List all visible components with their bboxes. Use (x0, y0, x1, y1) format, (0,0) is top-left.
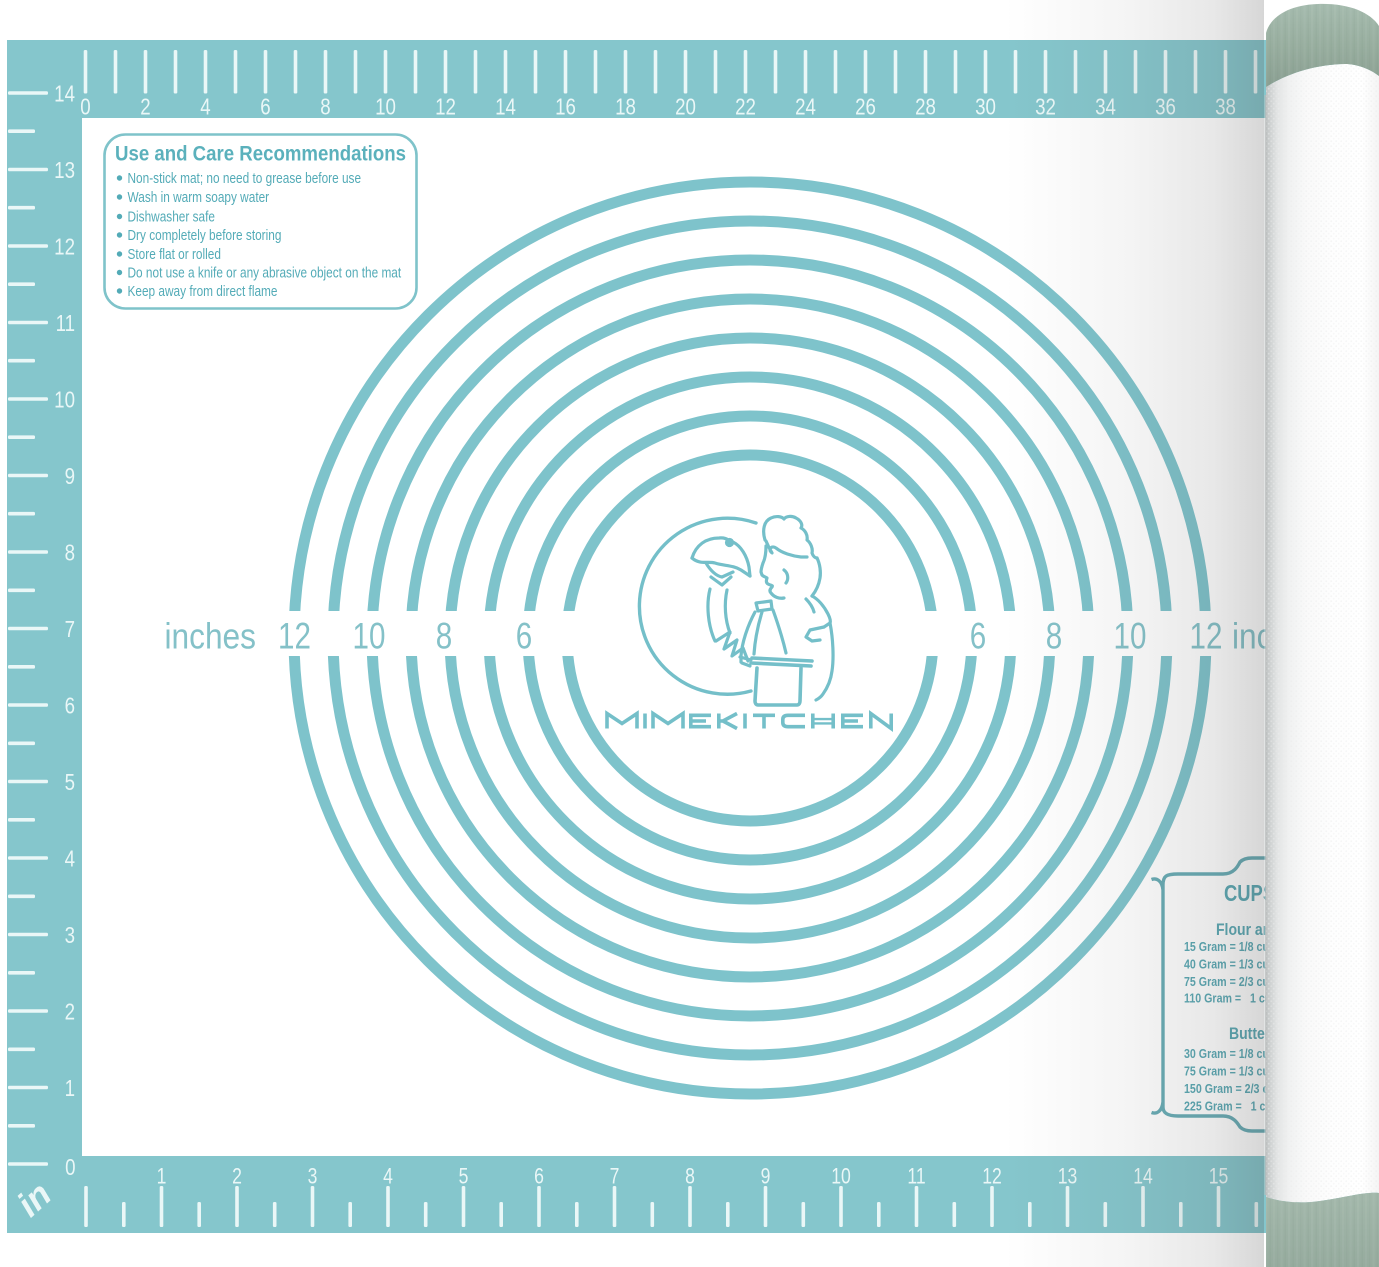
svg-text:10: 10 (375, 94, 396, 119)
svg-text:1: 1 (65, 1076, 75, 1101)
svg-text:3: 3 (65, 923, 75, 948)
svg-text:7: 7 (610, 1165, 620, 1189)
svg-text:22: 22 (735, 94, 756, 119)
svg-text:8: 8 (320, 94, 330, 119)
svg-text:0: 0 (65, 1155, 75, 1180)
svg-text:6: 6 (65, 693, 75, 718)
svg-text:8: 8 (65, 540, 75, 565)
svg-text:4: 4 (383, 1165, 393, 1189)
svg-text:6: 6 (260, 94, 270, 119)
svg-text:10: 10 (353, 616, 386, 657)
svg-text:26: 26 (855, 94, 876, 119)
svg-text:Dishwasher safe: Dishwasher safe (128, 208, 215, 225)
svg-text:1: 1 (157, 1165, 167, 1189)
svg-text:Use and Care Recommendations: Use and Care Recommendations (115, 142, 406, 166)
svg-text:12: 12 (435, 94, 456, 119)
svg-text:Dry completely before storing: Dry completely before storing (128, 227, 282, 244)
svg-text:12: 12 (278, 616, 311, 657)
svg-text:18: 18 (615, 94, 636, 119)
svg-text:10: 10 (54, 387, 75, 412)
svg-text:6: 6 (516, 616, 532, 657)
svg-text:Keep away from direct flame: Keep away from direct flame (128, 283, 278, 300)
svg-text:6: 6 (970, 616, 986, 657)
svg-text:4: 4 (65, 846, 76, 871)
svg-text:14: 14 (54, 81, 75, 106)
svg-text:6: 6 (534, 1165, 544, 1189)
svg-text:11: 11 (56, 311, 75, 336)
svg-text:2: 2 (140, 94, 150, 119)
svg-text:Do not use a knife or any abra: Do not use a knife or any abrasive objec… (128, 264, 402, 281)
svg-text:13: 13 (54, 158, 75, 183)
svg-text:12: 12 (982, 1165, 1002, 1189)
svg-text:10: 10 (831, 1165, 851, 1189)
svg-text:4: 4 (200, 94, 211, 119)
svg-text:inches: inches (164, 617, 256, 657)
svg-text:9: 9 (761, 1165, 771, 1189)
svg-text:0: 0 (80, 94, 90, 119)
svg-text:5: 5 (459, 1165, 469, 1189)
svg-text:2: 2 (65, 999, 75, 1024)
svg-text:Store flat or rolled: Store flat or rolled (128, 246, 221, 263)
svg-text:3: 3 (308, 1165, 318, 1189)
svg-text:Non-stick mat; no need to grea: Non-stick mat; no need to grease before … (128, 170, 362, 187)
svg-text:8: 8 (685, 1165, 695, 1189)
svg-text:8: 8 (436, 616, 452, 657)
svg-text:20: 20 (675, 94, 696, 119)
svg-text:30: 30 (975, 94, 996, 119)
svg-text:7: 7 (65, 617, 75, 642)
svg-text:14: 14 (495, 94, 516, 119)
svg-text:16: 16 (555, 94, 576, 119)
svg-text:Wash in warm soapy water: Wash in warm soapy water (128, 189, 270, 206)
svg-text:5: 5 (65, 770, 75, 795)
svg-text:28: 28 (915, 94, 936, 119)
svg-text:12: 12 (54, 234, 75, 259)
svg-text:11: 11 (907, 1165, 925, 1189)
svg-text:24: 24 (795, 94, 816, 119)
svg-text:2: 2 (232, 1165, 242, 1189)
svg-text:9: 9 (65, 464, 75, 489)
